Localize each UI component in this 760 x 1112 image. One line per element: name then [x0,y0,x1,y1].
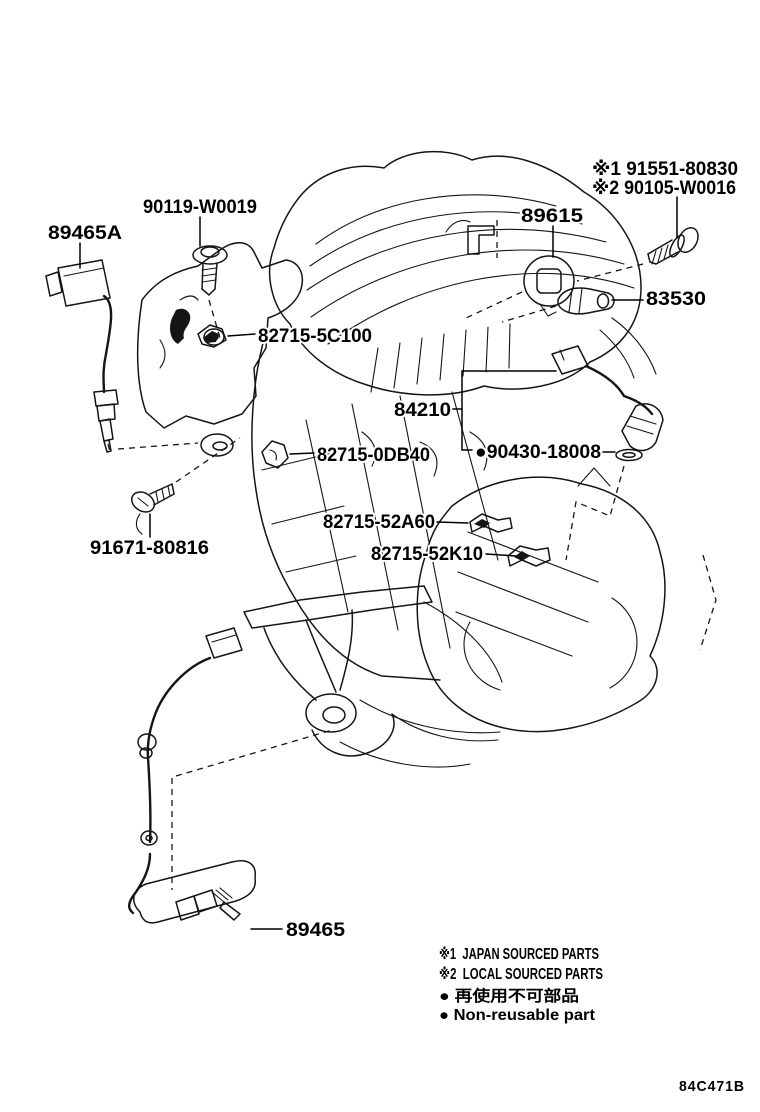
part-label-82715-0db40: 82715-0DB40 [317,445,430,466]
part-label-82715-52a60: 82715-52A60 [323,512,435,533]
clamp-5c100-drawing [198,325,226,347]
clamp-0db40-drawing [262,441,288,468]
bolt-91551-drawing [648,224,702,264]
exhaust-manifold-drawing [244,586,502,756]
part-label-89465: 89465 [286,920,345,941]
part-label-84210: 84210 [394,400,451,421]
parts-diagram-page: ※1 91551-80830 ※2 90105-W0016 89615 9011… [0,0,760,1112]
legend-nonreusable-en: ● Non-reusable part [439,1007,595,1024]
part-label-91671-80816: 91671-80816 [90,538,209,559]
part-label-91551-80830: ※1 91551-80830 [592,159,738,180]
part-label-83530: 83530 [646,289,706,310]
legend-local-sourced: ※2 LOCAL SOURCED PARTS [439,965,603,983]
legend-japan-sourced: ※1 JAPAN SOURCED PARTS [439,945,599,963]
knock-sensor-89615-drawing [524,256,574,316]
intake-plenum-drawing [270,152,641,395]
oxygen-sensor-89465-drawing [129,628,255,923]
engine-block-drawing [252,318,656,680]
bolt-91671-drawing [128,484,174,534]
oxygen-sensor-89465a-drawing [46,260,118,452]
part-label-89615: 89615 [521,206,583,227]
legend-nonreusable-jp: ● 再使用不可部品 [439,986,579,1005]
oil-pressure-switch-83530-drawing [558,288,614,314]
figure-code: 84C471B [679,1078,745,1095]
engine-parts-diagram: ※1 91551-80830 ※2 90105-W0016 89615 9011… [0,0,760,1112]
legend: ※1 JAPAN SOURCED PARTS ※2 LOCAL SOURCED … [439,945,603,1024]
clamp-52a60-drawing [470,514,512,532]
part-label-90119-w0019: 90119-W0019 [143,197,257,218]
part-label-82715-52k10: 82715-52K10 [371,544,483,565]
bolt-90119-drawing [193,246,227,295]
part-label-90105-w0016: ※2 90105-W0016 [592,178,736,199]
part-label-82715-5c100: 82715-5C100 [258,326,372,347]
part-label-89465a: 89465A [48,223,122,244]
cylinder-head-drawing [138,243,303,456]
part-label-90430-18008: ●90430-18008 [475,442,601,463]
